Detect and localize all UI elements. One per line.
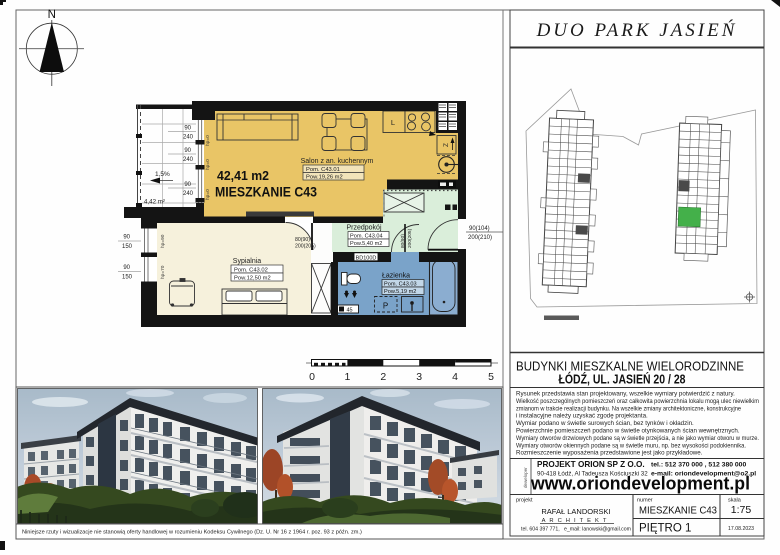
svg-text:Rozmieszczenie wyposażenia prz: Rozmieszczenie wyposażenia przedstawione… bbox=[516, 450, 703, 457]
svg-text:1: 1 bbox=[344, 371, 350, 383]
svg-text:3: 3 bbox=[416, 371, 422, 383]
svg-text:Salon z an. kuchennym: Salon z an. kuchennym bbox=[301, 158, 374, 165]
svg-text:Przedpokój: Przedpokój bbox=[346, 225, 381, 232]
svg-text:0: 0 bbox=[309, 371, 315, 383]
svg-text:1:75: 1:75 bbox=[731, 504, 752, 516]
svg-text:Wielkość poszczególnych pomies: Wielkość poszczególnych pomieszczeń oraz… bbox=[516, 398, 759, 405]
svg-text:200(210): 200(210) bbox=[468, 235, 492, 241]
svg-text:Łazienka: Łazienka bbox=[382, 273, 410, 280]
svg-text:P: P bbox=[383, 302, 388, 311]
svg-text:90: 90 bbox=[184, 148, 191, 154]
svg-text:45: 45 bbox=[346, 308, 352, 314]
svg-text:240: 240 bbox=[183, 191, 194, 197]
svg-text:Wymiar podano w świetle surowy: Wymiar podano w świetle surowych ścian, … bbox=[516, 420, 694, 427]
svg-text:N: N bbox=[48, 9, 56, 21]
svg-text:BD100D: BD100D bbox=[356, 255, 377, 261]
svg-text:ŁÓDŹ, UL. JASIEŃ 20 / 28: ŁÓDŹ, UL. JASIEŃ 20 / 28 bbox=[559, 372, 686, 387]
svg-text:4: 4 bbox=[452, 371, 458, 383]
svg-text:17.08.2023: 17.08.2023 bbox=[728, 526, 754, 532]
svg-text:Powierzchnie pomieszczeń podan: Powierzchnie pomieszczeń podano w świetl… bbox=[516, 428, 740, 435]
svg-text:80(90): 80(90) bbox=[295, 237, 310, 243]
svg-text:MIESZKANIE C43: MIESZKANIE C43 bbox=[215, 185, 317, 200]
svg-text:skala: skala bbox=[728, 498, 742, 504]
svg-text:90(104): 90(104) bbox=[469, 226, 490, 232]
svg-text:BUDYNKI MIESZKALNE WIELORODZIN: BUDYNKI MIESZKALNE WIELORODZINNE bbox=[516, 360, 744, 374]
svg-text:Pom. C43.01: Pom. C43.01 bbox=[306, 167, 340, 173]
svg-text:Sypialnia: Sypialnia bbox=[233, 258, 262, 265]
svg-text:i instalacyjne należy uzyskać: i instalacyjne należy uzyskać zgodę proj… bbox=[516, 413, 648, 420]
svg-text:numer: numer bbox=[637, 498, 653, 504]
svg-text:Pom. C43.03: Pom. C43.03 bbox=[384, 282, 417, 288]
svg-text:Z: Z bbox=[443, 143, 450, 147]
svg-text:DUO PARK JASIEŃ: DUO PARK JASIEŃ bbox=[536, 19, 738, 41]
svg-text:Pom. C43.04: Pom. C43.04 bbox=[350, 234, 383, 240]
svg-text:150: 150 bbox=[122, 244, 133, 250]
svg-text:zmianom w trakcie realizacji b: zmianom w trakcie realizacji budynku. Na… bbox=[516, 405, 741, 412]
svg-text:5: 5 bbox=[488, 371, 494, 383]
svg-text:www.oriondevelopment.pl: www.oriondevelopment.pl bbox=[530, 473, 750, 494]
svg-text:hp=70: hp=70 bbox=[160, 265, 166, 279]
svg-text:90: 90 bbox=[123, 265, 130, 271]
svg-text:hp=0: hp=0 bbox=[205, 135, 211, 146]
svg-text:ARCHITEKT: ARCHITEKT bbox=[542, 518, 611, 524]
svg-text:4,42 m²: 4,42 m² bbox=[144, 199, 165, 206]
svg-text:Niniejsze rzuty i wizualizacje: Niniejsze rzuty i wizualizacje nie stano… bbox=[22, 530, 362, 536]
svg-text:Pow.19,26 m2: Pow.19,26 m2 bbox=[306, 175, 343, 181]
svg-text:42,41 m2: 42,41 m2 bbox=[217, 169, 269, 183]
svg-text:L: L bbox=[391, 118, 395, 127]
svg-text:240: 240 bbox=[183, 135, 194, 141]
svg-text:tel.: 512 370 000 , 512 380 00: tel.: 512 370 000 , 512 380 000 bbox=[651, 462, 746, 469]
svg-text:90: 90 bbox=[123, 235, 130, 241]
svg-text:tel. 604 397 771, e_mail: la: tel. 604 397 771, e_mail: lanowski@gmail… bbox=[521, 527, 631, 533]
svg-text:hp=0: hp=0 bbox=[205, 189, 211, 200]
svg-text:PROJEKT ORION SP Z O.O.: PROJEKT ORION SP Z O.O. bbox=[537, 460, 645, 469]
svg-text:2: 2 bbox=[380, 371, 386, 383]
svg-text:80(90): 80(90) bbox=[400, 234, 406, 248]
svg-text:Rysunek przedstawia stan proje: Rysunek przedstawia stan projektowany, w… bbox=[516, 391, 735, 398]
svg-text:Pow.5,40 m2: Pow.5,40 m2 bbox=[350, 241, 382, 247]
svg-text:Wymiary otworów drzwiowych pod: Wymiary otworów drzwiowych podane są w ś… bbox=[516, 435, 759, 442]
svg-text:150: 150 bbox=[122, 275, 133, 281]
svg-text:200(205): 200(205) bbox=[407, 228, 413, 248]
svg-text:200(205): 200(205) bbox=[295, 244, 316, 250]
svg-text:hp=90: hp=90 bbox=[160, 234, 166, 248]
svg-text:Pow.12,50 m2: Pow.12,50 m2 bbox=[234, 275, 271, 281]
svg-text:Pow.5,19 m2: Pow.5,19 m2 bbox=[384, 289, 416, 295]
svg-text:1,5%: 1,5% bbox=[155, 171, 170, 178]
svg-text:90: 90 bbox=[184, 182, 191, 188]
svg-text:Wymiary otworów okiennych poda: Wymiary otworów okiennych podane są w św… bbox=[516, 442, 746, 449]
svg-text:deweloper: deweloper bbox=[523, 467, 528, 488]
svg-text:hp=0: hp=0 bbox=[205, 159, 211, 170]
svg-text:RAFAŁ LANDORSKI: RAFAŁ LANDORSKI bbox=[541, 507, 610, 516]
svg-text:projekt: projekt bbox=[516, 498, 533, 504]
svg-text:Pom. C43.02: Pom. C43.02 bbox=[234, 267, 268, 273]
svg-text:240: 240 bbox=[183, 157, 194, 163]
svg-text:90: 90 bbox=[184, 126, 191, 132]
svg-text:MIESZKANIE C43: MIESZKANIE C43 bbox=[639, 505, 717, 517]
svg-text:PIĘTRO 1: PIĘTRO 1 bbox=[639, 523, 691, 535]
